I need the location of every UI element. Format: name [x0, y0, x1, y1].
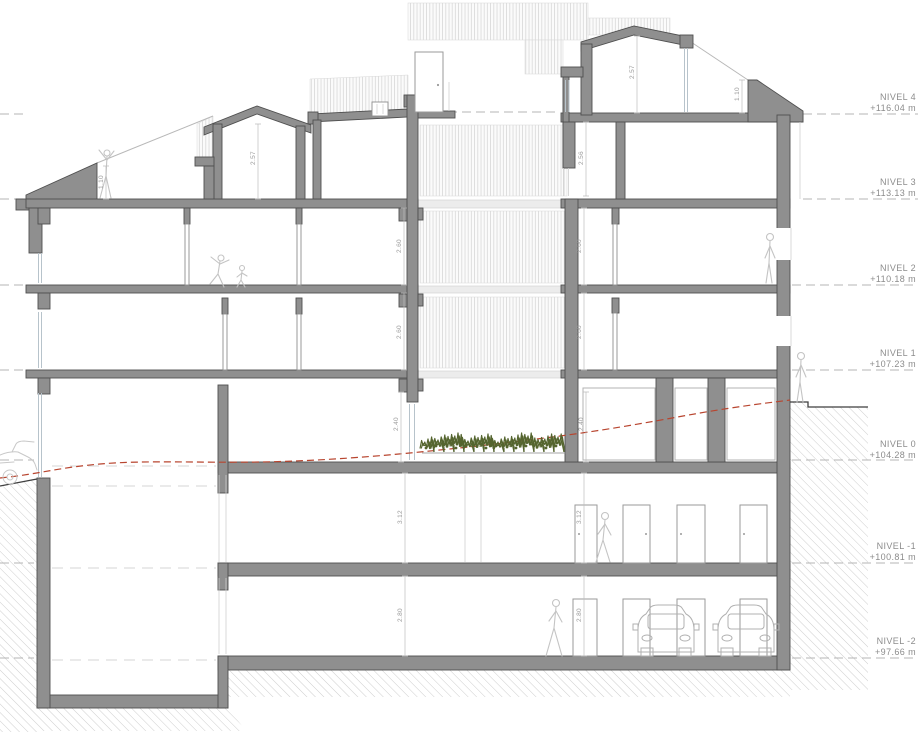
hedge-leaf	[515, 447, 518, 450]
dimension-text: 1.10	[734, 87, 741, 101]
hedge-leaf	[505, 443, 508, 446]
dimension-text: 2.40	[393, 417, 400, 431]
level-name: NIVEL 2	[880, 263, 916, 273]
level-elevation: +104.28 m	[870, 450, 916, 460]
level-name: NIVEL -2	[877, 636, 916, 646]
architectural-section-drawing: 1.10 2.57 2.57 1.10 2.56 2.60 2.60 2.60 …	[0, 0, 920, 732]
dimension-text: 2.56	[578, 151, 585, 165]
hedge-leaf	[475, 443, 478, 446]
level-name: NIVEL -1	[877, 541, 916, 551]
dimension-text: 2.60	[396, 325, 403, 339]
door-handle	[437, 84, 439, 86]
level-labels: NIVEL 4 +116.04 m NIVEL 3 +113.13 m NIVE…	[870, 92, 916, 657]
level-elevation: +107.23 m	[870, 359, 916, 369]
window-gap	[776, 228, 791, 260]
dimension-text: 1.10	[98, 175, 105, 189]
level-elevation: +113.13 m	[870, 188, 916, 198]
dimension-text: 2.60	[396, 239, 403, 253]
hedge-leaf	[455, 447, 458, 450]
level-name: NIVEL 4	[880, 92, 916, 102]
person-figure	[796, 353, 806, 403]
dimension-text: 2.60	[576, 239, 583, 253]
person-figure	[210, 255, 229, 287]
person-figure	[596, 513, 611, 563]
dimension-text: 2.40	[578, 417, 585, 431]
hedge-leaf	[445, 443, 448, 446]
hedge-leaf	[425, 447, 428, 450]
hedge-leaf	[495, 445, 498, 448]
hedge-leaf	[525, 445, 528, 448]
dimension-text: 2.80	[576, 608, 583, 622]
person-figure	[765, 234, 775, 284]
level-name: NIVEL 0	[880, 439, 916, 449]
roof-skylight	[372, 102, 388, 116]
level-name: NIVEL 1	[880, 348, 916, 358]
hedge-leaf	[435, 445, 438, 448]
terrace-door	[415, 52, 443, 112]
architectural-section-page: 1.10 2.57 2.57 1.10 2.56 2.60 2.60 2.60 …	[0, 0, 920, 732]
hedge-leaf	[485, 447, 488, 450]
level-elevation: +116.04 m	[870, 103, 916, 113]
hedge-leaf	[465, 445, 468, 448]
dimension-text: 2.57	[629, 65, 636, 79]
person-figure	[237, 266, 247, 288]
hedge-leaf	[545, 447, 548, 450]
dimension-text: 3.12	[576, 510, 583, 524]
hedge-leaf	[535, 443, 538, 446]
dimension-text: 2.57	[250, 151, 257, 165]
dimension-text: 2.60	[576, 325, 583, 339]
hedge-leaf	[555, 445, 558, 448]
level-elevation: +100.81 m	[870, 552, 916, 562]
dimension-text: 2.80	[397, 608, 404, 622]
person-figure	[546, 600, 562, 657]
dimension-text: 3.12	[397, 510, 404, 524]
level-name: NIVEL 3	[880, 177, 916, 187]
window-gap	[776, 316, 791, 346]
level-elevation: +97.66 m	[875, 647, 916, 657]
level-elevation: +110.18 m	[870, 274, 916, 284]
